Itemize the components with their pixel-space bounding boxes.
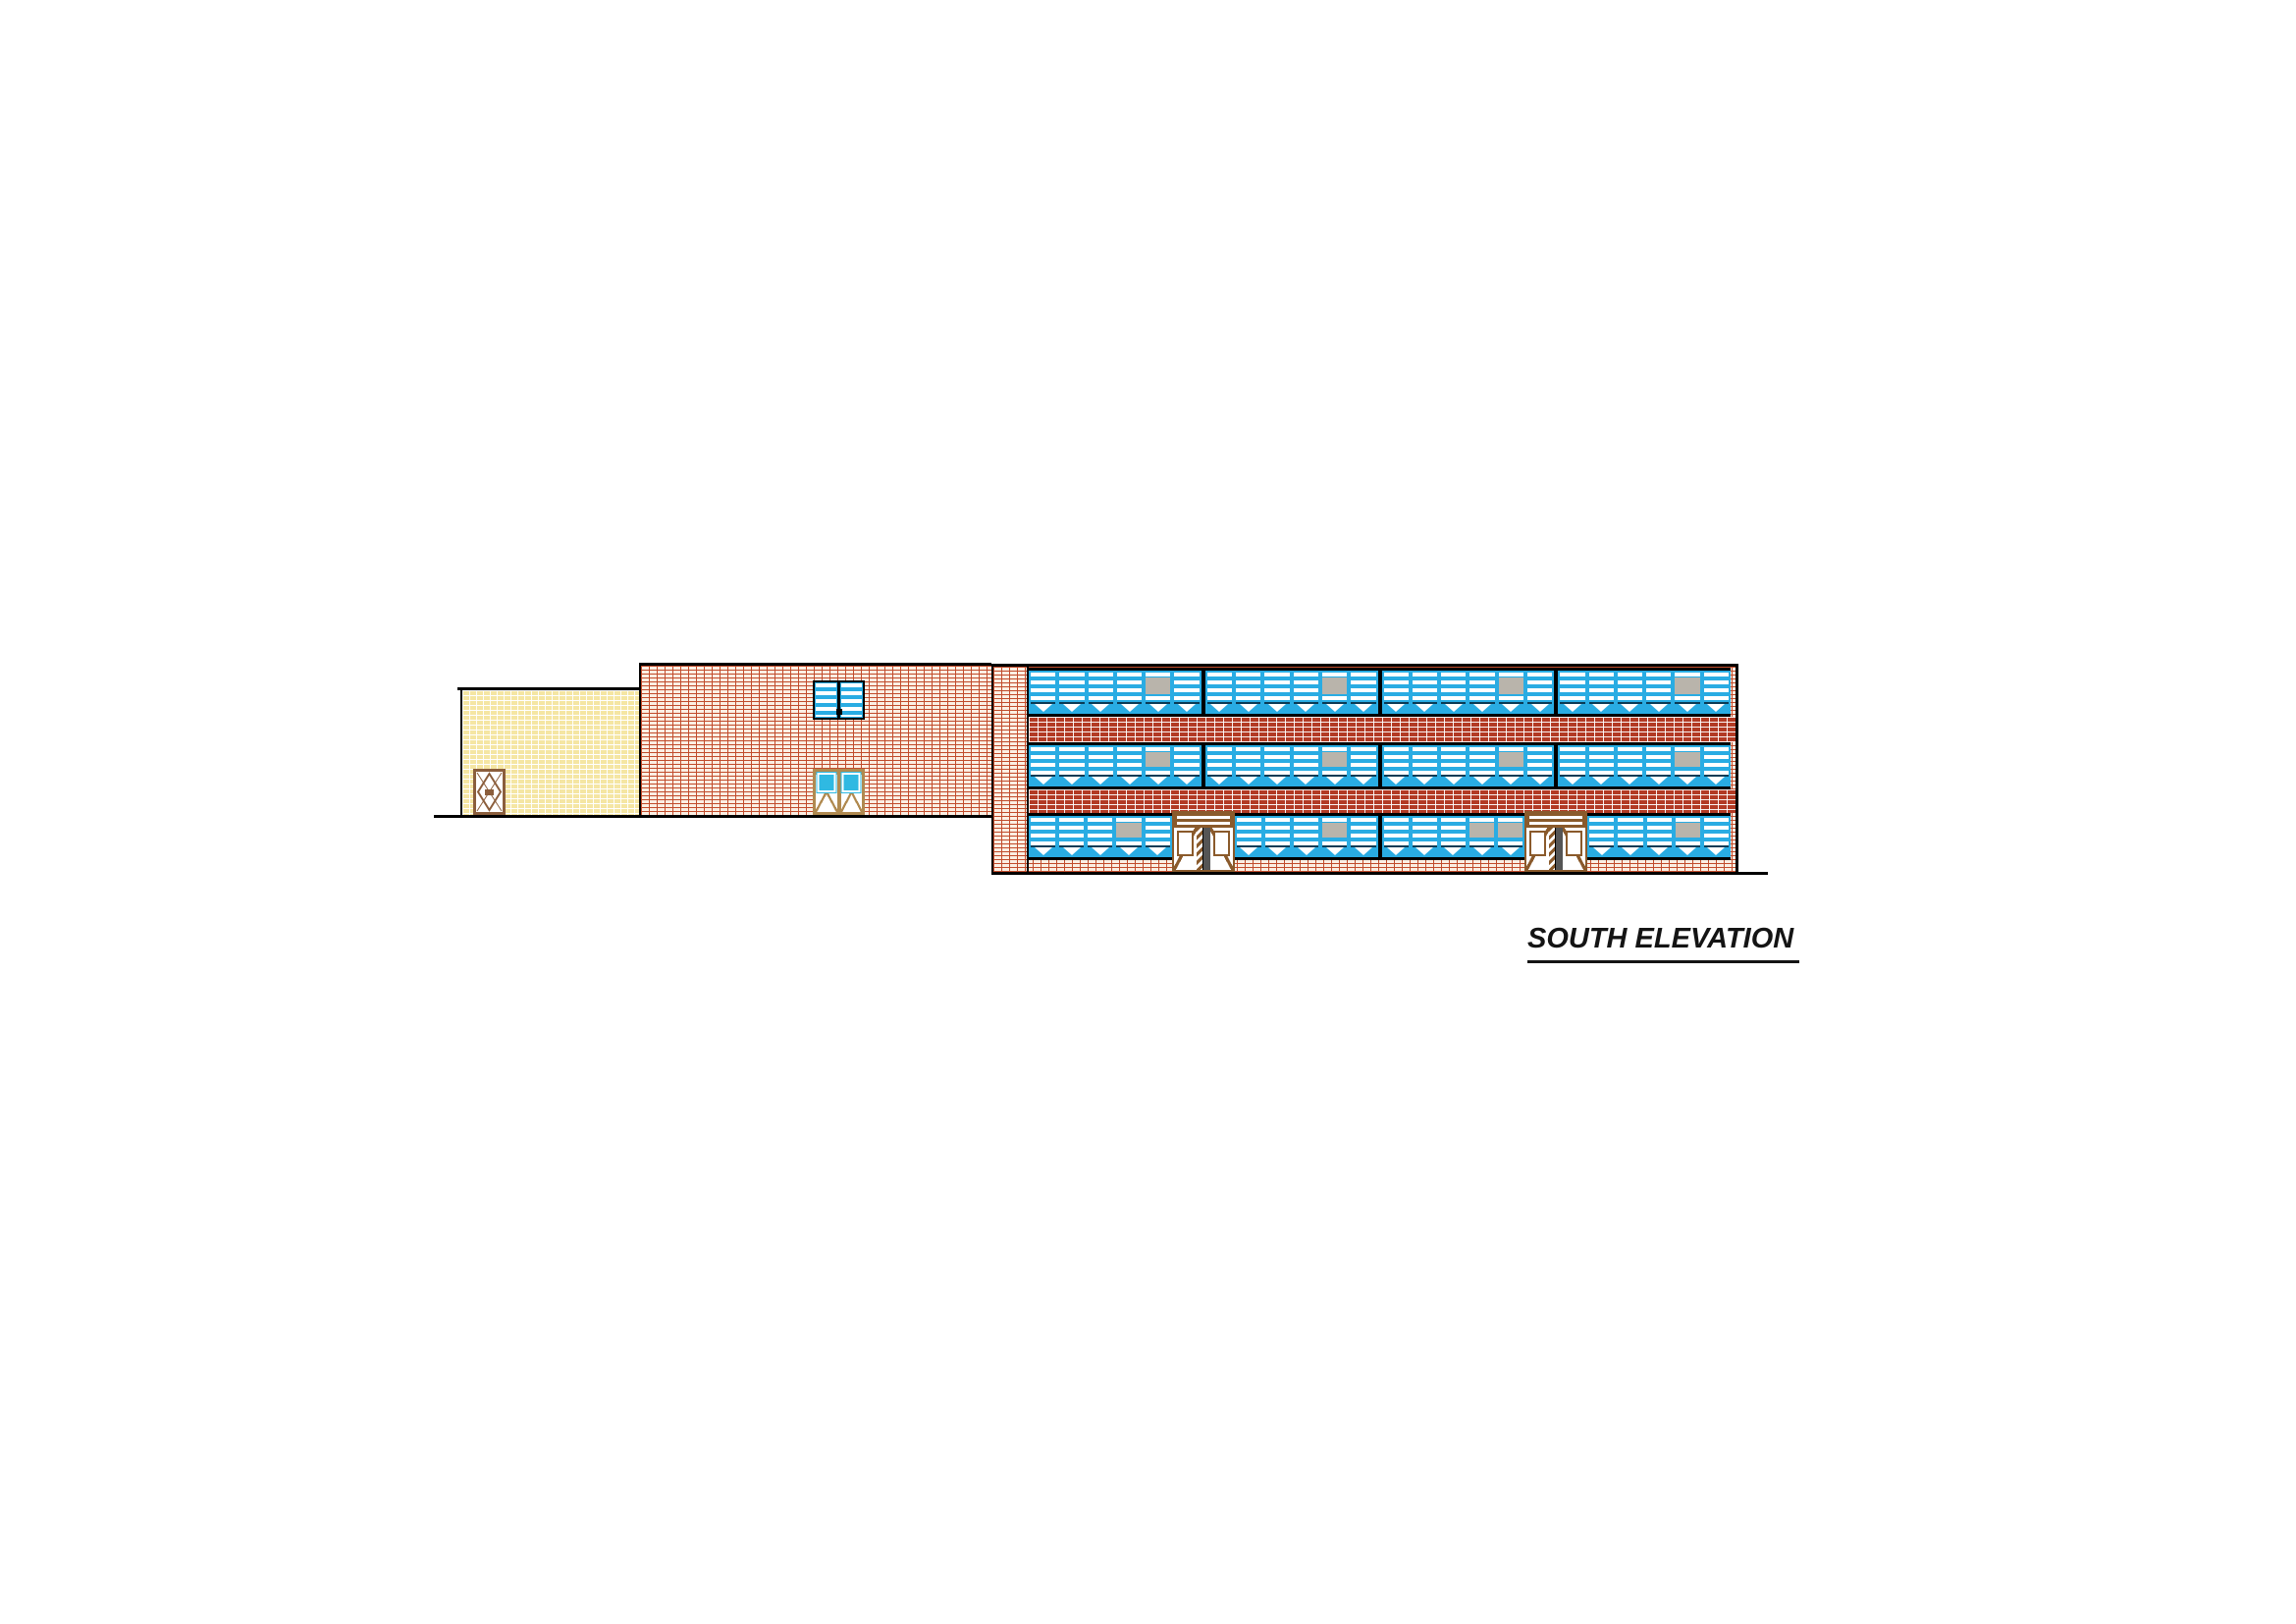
window-glass [1146,673,1170,702]
hopper-vent [1384,704,1409,714]
window-glass [1675,673,1699,702]
window-pane [1674,816,1702,857]
hopper-vent [1384,777,1409,786]
window-pane [1702,816,1731,857]
window-glass [1174,673,1199,702]
hopper-vent [1116,847,1141,857]
window-glass [1527,747,1552,775]
window-pane [1673,671,1701,714]
hopper-vent [1207,777,1232,786]
window-pane [1172,671,1201,714]
center-wing-wall [639,663,991,815]
infill-panel [1322,677,1347,694]
window-pane [1292,745,1320,786]
window-glass [1322,673,1347,702]
window-pane [1144,671,1172,714]
window-pane [1234,671,1262,714]
grade-line-right-extension [1738,872,1768,875]
window-pane [1114,816,1143,857]
hopper-vent [1059,847,1084,857]
window-glass [1527,673,1552,702]
window-latch [836,709,842,715]
hopper-vent [1618,777,1642,786]
window-group-segment [1235,816,1378,857]
infill-panel [1469,823,1494,838]
window-glass [1322,818,1347,845]
hopper-vent [1560,704,1584,714]
window-pane [1320,816,1349,857]
window-glass [1146,747,1170,775]
window-pane [1234,745,1262,786]
door-transom [1174,813,1233,828]
door-glazing [819,775,833,790]
infill-panel [1146,752,1170,767]
infill-panel [1322,752,1347,767]
door-glazing [844,775,859,790]
infill-panel [1676,823,1700,838]
window-glass [1647,818,1672,845]
window-pane [1468,671,1496,714]
door-leaf [1174,828,1197,870]
hopper-vent [1646,704,1671,714]
hopper-vent [1499,777,1523,786]
window-pane [1497,671,1525,714]
hopper-vent [1322,704,1347,714]
main-block-wall [991,664,1738,875]
hopper-vent [1441,847,1466,857]
window-glass [1499,673,1523,702]
hopper-vent [1647,847,1672,857]
window-glass [1589,747,1614,775]
window-pane [1263,816,1292,857]
window-pane [1349,745,1377,786]
hopper-vent [1351,704,1375,714]
window-pane [1587,671,1616,714]
door-body [1526,828,1585,870]
window-pane [1525,745,1554,786]
window-glass [1469,747,1494,775]
window-pane [1235,816,1263,857]
window-glass [1146,818,1170,845]
window-pane [1115,671,1144,714]
window-band-floor-1 [1029,813,1731,860]
transom-light [1529,822,1582,825]
door-glazing [1529,831,1546,856]
infill-panel [1499,677,1523,694]
window-glass [1294,673,1318,702]
window-glass [1236,747,1260,775]
window-glass [1618,818,1642,845]
window-glass [1413,818,1437,845]
window-glass [1236,673,1260,702]
hopper-vent [1675,704,1699,714]
window-pane [1558,671,1586,714]
hopper-vent [1236,704,1260,714]
door-leaf [1563,828,1585,870]
hopper-vent [1589,847,1614,857]
hopper-vent [1413,847,1437,857]
window-glass [1589,818,1614,845]
window-group-segment [1382,671,1555,714]
window-glass [1618,673,1642,702]
window-pane [1411,671,1439,714]
hopper-vent [1117,777,1142,786]
window-pane [1205,745,1234,786]
entrance-double-door [1524,811,1587,872]
hopper-vent [1322,847,1347,857]
hopper-vent [1560,777,1584,786]
window-pane [1616,816,1644,857]
door-center-post-dark [1202,828,1210,870]
window-glass [1351,747,1375,775]
hopper-vent [1117,704,1142,714]
window-pane [1144,816,1172,857]
window-glass [1031,747,1055,775]
hopper-vent [1059,777,1084,786]
hopper-vent [1146,847,1170,857]
window-glass [1413,747,1437,775]
window-pane [1292,816,1320,857]
window-pane [1468,745,1496,786]
window-glass [1207,673,1232,702]
window-group-segment [1382,745,1555,786]
window-glass [1031,818,1055,845]
infill-panel [1498,823,1522,838]
window-pane [840,682,863,718]
hopper-vent [1441,777,1466,786]
window-glass [1117,747,1142,775]
window-pane [1496,816,1524,857]
hopper-vent [1174,777,1199,786]
window-glass [1704,673,1729,702]
window-pane [1029,745,1057,786]
window-pane [1702,745,1731,786]
hopper-vent [1646,777,1671,786]
window-glass [1589,673,1614,702]
center-wing-window [813,680,865,720]
window-glass [1322,747,1347,775]
window-pane [1411,816,1439,857]
window-glass [1560,673,1584,702]
window-glass [1117,673,1142,702]
window-group-segment [1558,671,1731,714]
window-glass [1646,747,1671,775]
window-glass [1384,673,1409,702]
hopper-vent [1059,704,1084,714]
window-glass [1441,818,1466,845]
window-pane [1262,745,1291,786]
grade-line-left [434,815,993,818]
hopper-vent [1089,777,1113,786]
hopper-vent [1236,777,1260,786]
window-pane [1702,671,1731,714]
door-transom [1526,813,1585,828]
window-pane [1087,745,1115,786]
infill-panel [1499,752,1523,767]
window-pane [1382,816,1411,857]
hopper-vent [1589,777,1614,786]
window-glass [1618,747,1642,775]
hopper-vent [1704,847,1729,857]
window-pane [1057,816,1086,857]
window-pane [1115,745,1144,786]
window-glass [1646,673,1671,702]
drawing-title-text: SOUTH ELEVATION [1527,923,1793,954]
hopper-vent [1351,777,1375,786]
door-body [1174,828,1233,870]
hopper-vent [1264,704,1289,714]
hopper-vent [1527,704,1552,714]
window-group-segment [1382,816,1525,857]
hopper-vent [1469,704,1494,714]
hopper-vent [1237,847,1261,857]
window-pane [1587,745,1616,786]
window-pane [1439,745,1468,786]
window-pane [1616,671,1644,714]
hopper-vent [1527,777,1552,786]
window-glass [1059,747,1084,775]
hopper-vent [1146,704,1170,714]
window-glass [1469,818,1494,845]
window-group-segment [1558,745,1731,786]
hopper-vent [1413,704,1437,714]
spandrel-band-lower [1029,789,1735,813]
window-pane [1086,816,1114,857]
hopper-vent [1089,704,1113,714]
center-wing-double-door [813,769,865,815]
window-glass [1676,818,1700,845]
window-glass [1294,747,1318,775]
hopper-vent [1264,777,1289,786]
window-glass [1207,747,1232,775]
door-leaf [1526,828,1549,870]
window-glass [1174,747,1199,775]
transom-light [1177,816,1230,819]
hopper-vent [1088,847,1112,857]
hopper-vent [1469,777,1494,786]
window-pane [1439,671,1468,714]
window-glass [1675,747,1699,775]
hopper-vent [1351,847,1375,857]
hopper-vent [1499,704,1523,714]
spandrel-band-upper [1029,717,1735,742]
window-glass [1498,818,1522,845]
window-pane [815,682,837,718]
window-pane [1205,671,1234,714]
window-pane [1411,745,1439,786]
transom-light [1529,816,1582,819]
window-pane [1057,671,1086,714]
door-glazing [1177,831,1194,856]
window-pane [1525,671,1554,714]
window-glass [1413,673,1437,702]
window-pane [1558,745,1586,786]
hopper-vent [1618,704,1642,714]
hopper-vent [1294,777,1318,786]
window-glass [1351,818,1375,845]
window-pane [1087,671,1115,714]
window-glass [1116,818,1141,845]
infill-panel [1675,752,1699,767]
window-glass [1441,673,1466,702]
window-pane [1382,745,1411,786]
window-band-floor-3 [1029,668,1731,717]
hopper-vent [1031,704,1055,714]
window-group-segment [1587,816,1731,857]
window-pane [1439,816,1468,857]
infill-panel [1322,823,1347,838]
infill-panel [1675,677,1699,694]
window-group-segment [1205,671,1378,714]
hopper-vent [1675,777,1699,786]
window-pane [1029,671,1057,714]
hopper-vent [1294,847,1318,857]
window-band-floor-2 [1029,742,1731,789]
window-glass [1265,818,1290,845]
window-glass [1704,818,1729,845]
window-pane [1349,671,1377,714]
hopper-vent [1031,847,1055,857]
window-pane [1644,745,1673,786]
hopper-vent [1146,777,1170,786]
hopper-vent [1322,777,1347,786]
infill-panel [1146,677,1170,694]
window-glass [1704,747,1729,775]
hopper-vent [1498,847,1522,857]
window-pane [1645,816,1674,857]
window-glass [1237,818,1261,845]
window-glass [1031,673,1055,702]
hopper-vent [1207,704,1232,714]
window-pane [1382,671,1411,714]
door-leaf [1210,828,1233,870]
window-pane [1320,745,1349,786]
hopper-vent [1384,847,1409,857]
window-pane [1616,745,1644,786]
window-glass [1264,747,1289,775]
window-glass [1351,673,1375,702]
window-group-segment [1029,745,1201,786]
window-pane [1468,816,1496,857]
hopper-vent [1704,704,1729,714]
window-pane [1587,816,1616,857]
window-glass [1469,673,1494,702]
entrance-double-door [1172,811,1235,872]
hopper-vent [1294,704,1318,714]
infill-panel [1116,823,1141,838]
hopper-vent [1469,847,1494,857]
hopper-vent [1618,847,1642,857]
diamond-brace-door-graphic [473,769,506,815]
door-center-post-dark [1555,828,1563,870]
drawing-title: SOUTH ELEVATION [1527,923,1799,963]
window-pane [1320,671,1349,714]
window-glass [1089,673,1113,702]
window-glass [1384,747,1409,775]
hopper-vent [1174,704,1199,714]
window-group-segment [1205,745,1378,786]
window-glass [1059,673,1084,702]
window-pane [1644,671,1673,714]
window-pane [1144,745,1172,786]
window-group-segment [1029,671,1201,714]
hopper-vent [1031,777,1055,786]
window-group-segment [1029,816,1172,857]
window-pane [1029,816,1057,857]
door-glazing [1213,831,1230,856]
south-elevation-drawing: SOUTH ELEVATION [0,0,2296,1624]
window-glass [1059,818,1084,845]
hopper-vent [1265,847,1290,857]
window-glass [1088,818,1112,845]
door-glazing [1566,831,1582,856]
window-glass [1294,818,1318,845]
window-pane [1497,745,1525,786]
window-glass [1560,747,1584,775]
window-pane [1262,671,1291,714]
door-leaf [841,772,863,812]
window-pane [1292,671,1320,714]
window-pane [1172,745,1201,786]
window-glass [1499,747,1523,775]
window-pane [1057,745,1086,786]
window-pane [1349,816,1377,857]
window-pane [1673,745,1701,786]
hopper-vent [1589,704,1614,714]
transom-light [1177,822,1230,825]
hopper-vent [1441,704,1466,714]
window-glass [1384,818,1409,845]
hopper-vent [1704,777,1729,786]
window-glass [1264,673,1289,702]
hopper-vent [1676,847,1700,857]
door-leaf [816,772,837,812]
window-glass [1089,747,1113,775]
window-glass [1441,747,1466,775]
hopper-vent [1413,777,1437,786]
left-wing-door [473,769,506,815]
